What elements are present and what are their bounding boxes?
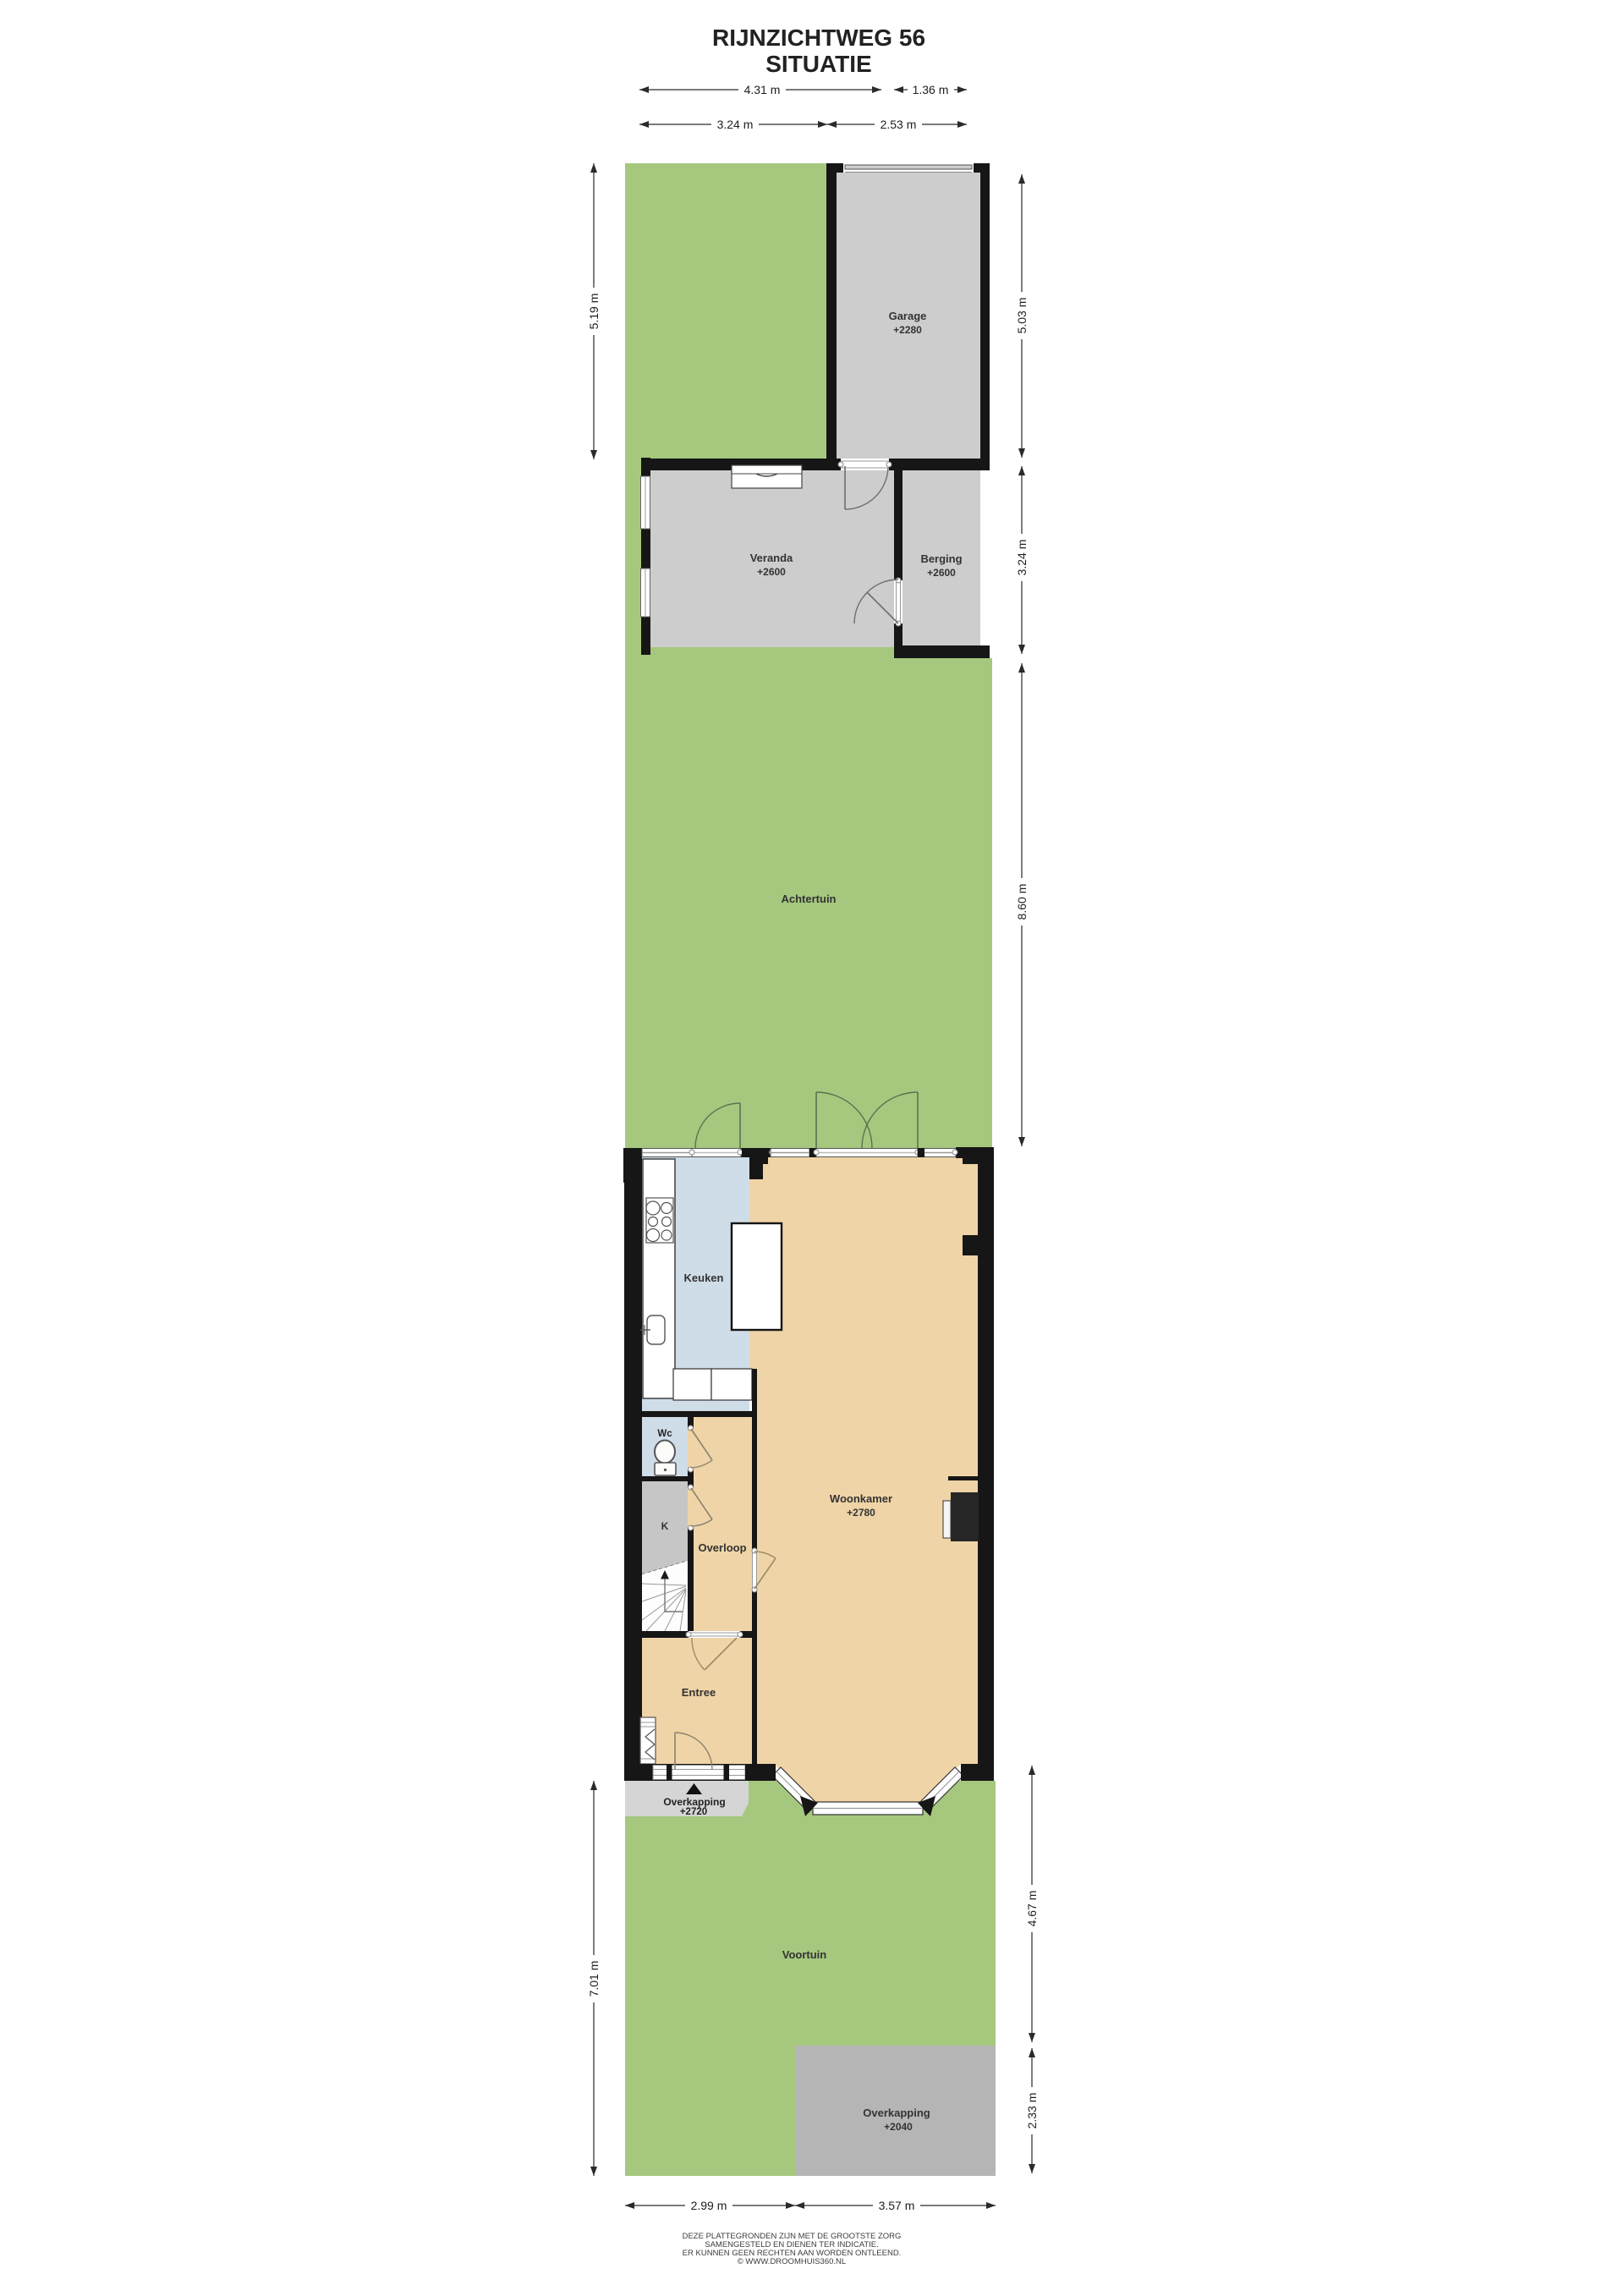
svg-text:Garage: Garage — [889, 310, 927, 322]
svg-text:+2600: +2600 — [927, 567, 956, 579]
svg-text:Veranda: Veranda — [750, 552, 793, 564]
svg-text:Overloop: Overloop — [698, 1541, 746, 1554]
svg-text:K: K — [661, 1520, 669, 1532]
svg-text:5.19 m: 5.19 m — [587, 294, 601, 330]
svg-text:+2280: +2280 — [893, 324, 922, 336]
svg-text:4.31 m: 4.31 m — [744, 83, 781, 96]
svg-text:Entree: Entree — [682, 1686, 716, 1699]
svg-text:RIJNZICHTWEG 56: RIJNZICHTWEG 56 — [712, 25, 925, 51]
svg-text:Voortuin: Voortuin — [782, 1948, 827, 1961]
svg-text:+2720: +2720 — [680, 1807, 707, 1817]
svg-text:2.99 m: 2.99 m — [691, 2199, 727, 2212]
svg-text:5.03 m: 5.03 m — [1015, 298, 1029, 334]
svg-text:+2600: +2600 — [757, 566, 786, 578]
svg-text:4.67 m: 4.67 m — [1025, 1891, 1039, 1927]
svg-text:3.24 m: 3.24 m — [717, 118, 754, 131]
svg-text:Achtertuin: Achtertuin — [782, 893, 837, 905]
svg-text:Keuken: Keuken — [684, 1272, 724, 1284]
svg-text:1.36 m: 1.36 m — [913, 83, 949, 96]
svg-text:3.57 m: 3.57 m — [879, 2199, 915, 2212]
svg-text:© WWW.DROOMHUIS360.NL: © WWW.DROOMHUIS360.NL — [738, 2257, 846, 2266]
svg-text:Overkapping: Overkapping — [663, 1796, 725, 1808]
svg-text:SITUATIE: SITUATIE — [765, 51, 871, 77]
svg-text:Overkapping: Overkapping — [863, 2106, 930, 2119]
svg-text:+2780: +2780 — [847, 1507, 875, 1519]
svg-text:2.33 m: 2.33 m — [1025, 2093, 1039, 2129]
svg-text:Berging: Berging — [920, 552, 962, 565]
svg-text:Wc: Wc — [657, 1429, 672, 1439]
svg-text:Woonkamer: Woonkamer — [830, 1492, 892, 1505]
svg-text:8.60 m: 8.60 m — [1015, 884, 1029, 920]
svg-text:7.01 m: 7.01 m — [587, 1961, 601, 1997]
svg-text:3.24 m: 3.24 m — [1015, 540, 1029, 576]
svg-text:2.53 m: 2.53 m — [881, 118, 917, 131]
svg-text:+2040: +2040 — [884, 2121, 913, 2133]
